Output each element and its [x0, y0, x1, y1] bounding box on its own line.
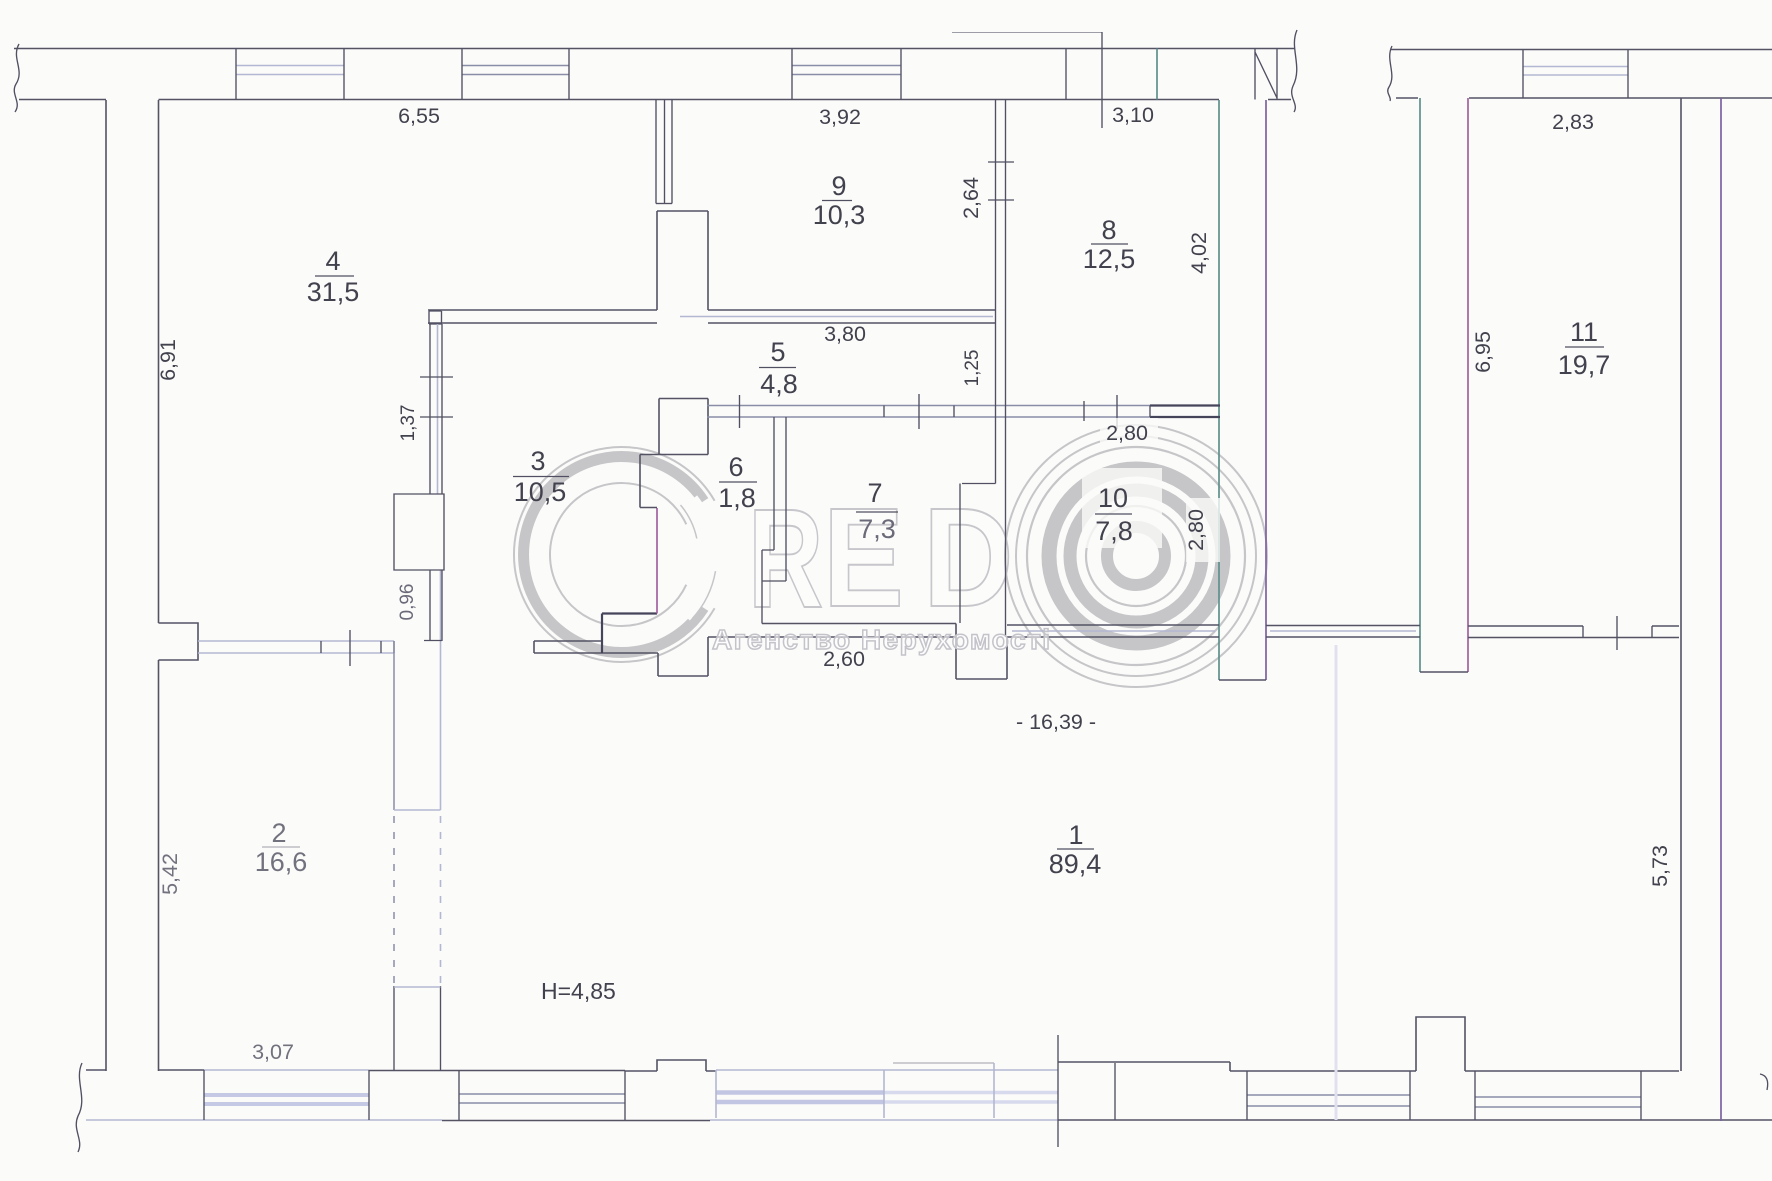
svg-text:3: 3 — [530, 446, 545, 476]
svg-text:6,55: 6,55 — [398, 104, 440, 128]
svg-text:10: 10 — [1098, 483, 1128, 513]
svg-text:3,10: 3,10 — [1112, 103, 1154, 127]
svg-text:4: 4 — [325, 246, 340, 276]
svg-text:1,37: 1,37 — [398, 405, 419, 442]
svg-text:2,83: 2,83 — [1552, 110, 1594, 134]
svg-text:1,25: 1,25 — [962, 350, 983, 387]
svg-text:89,4: 89,4 — [1049, 849, 1102, 879]
svg-text:H=4,85: H=4,85 — [541, 978, 616, 1004]
svg-text:2: 2 — [271, 818, 286, 848]
svg-text:5,73: 5,73 — [1648, 845, 1672, 887]
svg-text:16,6: 16,6 — [255, 847, 308, 877]
svg-text:10,5: 10,5 — [514, 477, 567, 507]
svg-text:3,92: 3,92 — [819, 105, 861, 129]
svg-text:2,64: 2,64 — [959, 177, 983, 219]
svg-text:19,7: 19,7 — [1558, 350, 1611, 380]
svg-text:- 16,39 -: - 16,39 - — [1016, 710, 1096, 734]
svg-text:6,91: 6,91 — [156, 339, 180, 381]
svg-text:D: D — [923, 479, 1014, 636]
svg-text:6: 6 — [728, 452, 743, 482]
svg-text:5,42: 5,42 — [158, 853, 182, 895]
svg-text:7,8: 7,8 — [1095, 516, 1133, 546]
svg-text:6,95: 6,95 — [1471, 331, 1495, 373]
svg-text:10,3: 10,3 — [813, 200, 866, 230]
svg-text:3,07: 3,07 — [252, 1040, 294, 1064]
svg-text:7: 7 — [867, 478, 882, 508]
svg-text:31,5: 31,5 — [307, 277, 360, 307]
svg-text:Агенство Нерухомості: Агенство Нерухомості — [712, 624, 1052, 655]
svg-text:3,80: 3,80 — [824, 322, 866, 346]
svg-text:5: 5 — [770, 337, 785, 367]
svg-text:0,96: 0,96 — [397, 584, 418, 621]
svg-text:8: 8 — [1101, 215, 1116, 245]
svg-text:9: 9 — [831, 171, 846, 201]
svg-text:12,5: 12,5 — [1083, 244, 1136, 274]
svg-text:11: 11 — [1570, 317, 1598, 347]
svg-text:4,02: 4,02 — [1187, 232, 1211, 274]
svg-text:1: 1 — [1068, 820, 1083, 850]
svg-text:2,80: 2,80 — [1106, 421, 1148, 445]
svg-text:2,80: 2,80 — [1184, 509, 1208, 551]
svg-text:E: E — [823, 478, 904, 636]
svg-text:1,8: 1,8 — [718, 483, 756, 513]
svg-text:2,60: 2,60 — [823, 647, 865, 671]
svg-text:4,8: 4,8 — [760, 369, 798, 399]
svg-text:7,3: 7,3 — [858, 514, 896, 544]
